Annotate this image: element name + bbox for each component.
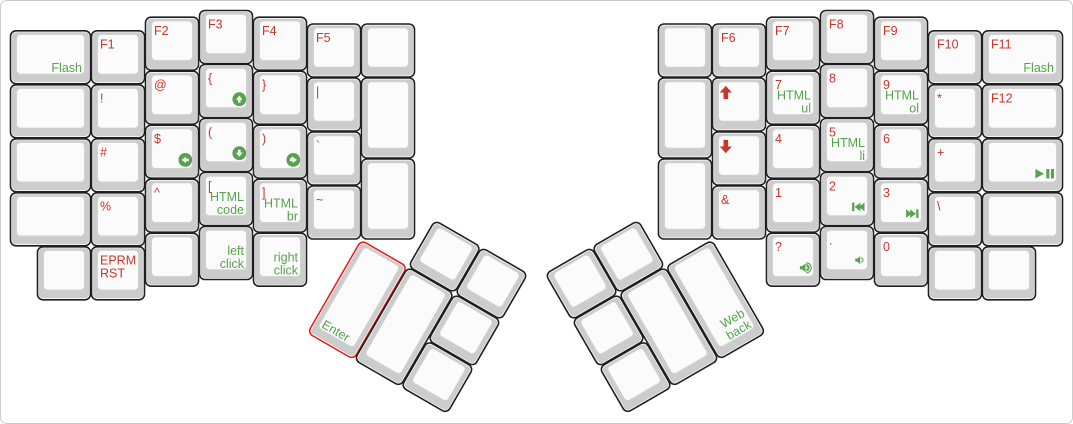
svg-text:$: $ xyxy=(154,132,161,146)
svg-text:&: & xyxy=(721,193,730,207)
svg-text:F7: F7 xyxy=(775,24,790,38)
svg-text:@: @ xyxy=(154,78,167,92)
svg-text:8: 8 xyxy=(829,71,836,85)
svg-text:click: click xyxy=(220,257,245,271)
svg-text:HTML: HTML xyxy=(831,136,865,150)
svg-text:2: 2 xyxy=(829,179,836,193)
svg-text:F5: F5 xyxy=(316,31,331,45)
svg-text:F11: F11 xyxy=(991,38,1012,52)
svg-text:}: } xyxy=(262,78,266,92)
svg-text:`: ` xyxy=(316,139,320,153)
svg-text:left: left xyxy=(227,244,244,258)
svg-text:F1: F1 xyxy=(100,38,115,52)
svg-text:ul: ul xyxy=(801,102,811,116)
svg-text:li: li xyxy=(859,149,865,163)
svg-text:4: 4 xyxy=(775,132,782,146)
svg-text:code: code xyxy=(217,203,244,217)
svg-text:br: br xyxy=(287,210,298,224)
svg-text:F10: F10 xyxy=(937,38,959,52)
svg-text:F12: F12 xyxy=(991,92,1013,106)
svg-text:F3: F3 xyxy=(208,17,223,31)
svg-text:~: ~ xyxy=(316,193,323,207)
svg-text:HTML: HTML xyxy=(885,89,919,103)
svg-text:RST: RST xyxy=(100,267,125,281)
svg-text:F8: F8 xyxy=(829,17,844,31)
svg-text:#: # xyxy=(100,146,107,160)
svg-text:^: ^ xyxy=(154,186,160,200)
svg-text:click: click xyxy=(274,264,299,278)
svg-text:\: \ xyxy=(937,200,941,214)
svg-text:Flash: Flash xyxy=(1023,61,1054,75)
svg-text:.: . xyxy=(829,233,832,247)
svg-text:): ) xyxy=(262,132,266,146)
svg-text:F2: F2 xyxy=(154,24,169,38)
svg-text:?: ? xyxy=(775,240,782,254)
svg-text:3: 3 xyxy=(883,186,890,200)
svg-text:HTML: HTML xyxy=(264,197,298,211)
svg-text:!: ! xyxy=(100,92,103,106)
svg-text:HTML: HTML xyxy=(210,190,244,204)
svg-text:0: 0 xyxy=(883,240,890,254)
svg-text:*: * xyxy=(937,92,942,106)
svg-text:{: { xyxy=(208,71,212,85)
svg-text:|: | xyxy=(316,85,319,99)
svg-text:%: % xyxy=(100,200,111,214)
svg-text:6: 6 xyxy=(883,132,890,146)
svg-text:ol: ol xyxy=(909,102,919,116)
svg-text:F4: F4 xyxy=(262,24,277,38)
svg-text:F9: F9 xyxy=(883,24,898,38)
svg-text:+: + xyxy=(937,146,944,160)
svg-text:right: right xyxy=(274,251,299,265)
svg-text:F6: F6 xyxy=(721,31,736,45)
svg-text:EPRM: EPRM xyxy=(100,254,136,268)
svg-text:Flash: Flash xyxy=(51,61,82,75)
svg-text:HTML: HTML xyxy=(777,89,811,103)
svg-text:1: 1 xyxy=(775,186,782,200)
